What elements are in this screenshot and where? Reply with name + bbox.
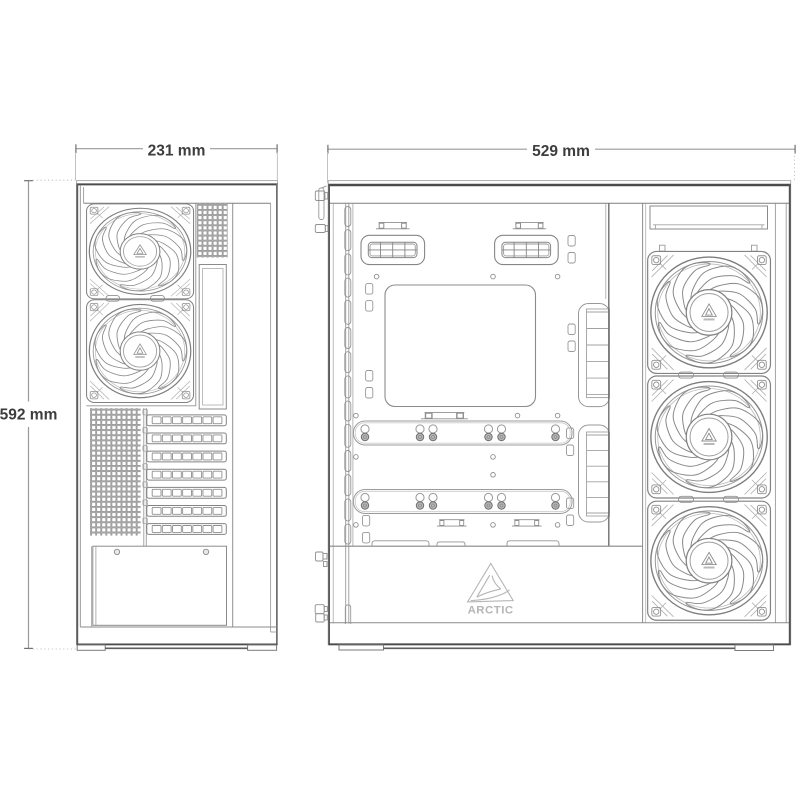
svg-text:231 mm: 231 mm (148, 142, 206, 159)
svg-text:529 mm: 529 mm (532, 143, 590, 160)
svg-text:592 mm: 592 mm (0, 406, 57, 423)
svg-text:ARCTIC: ARCTIC (468, 604, 514, 616)
